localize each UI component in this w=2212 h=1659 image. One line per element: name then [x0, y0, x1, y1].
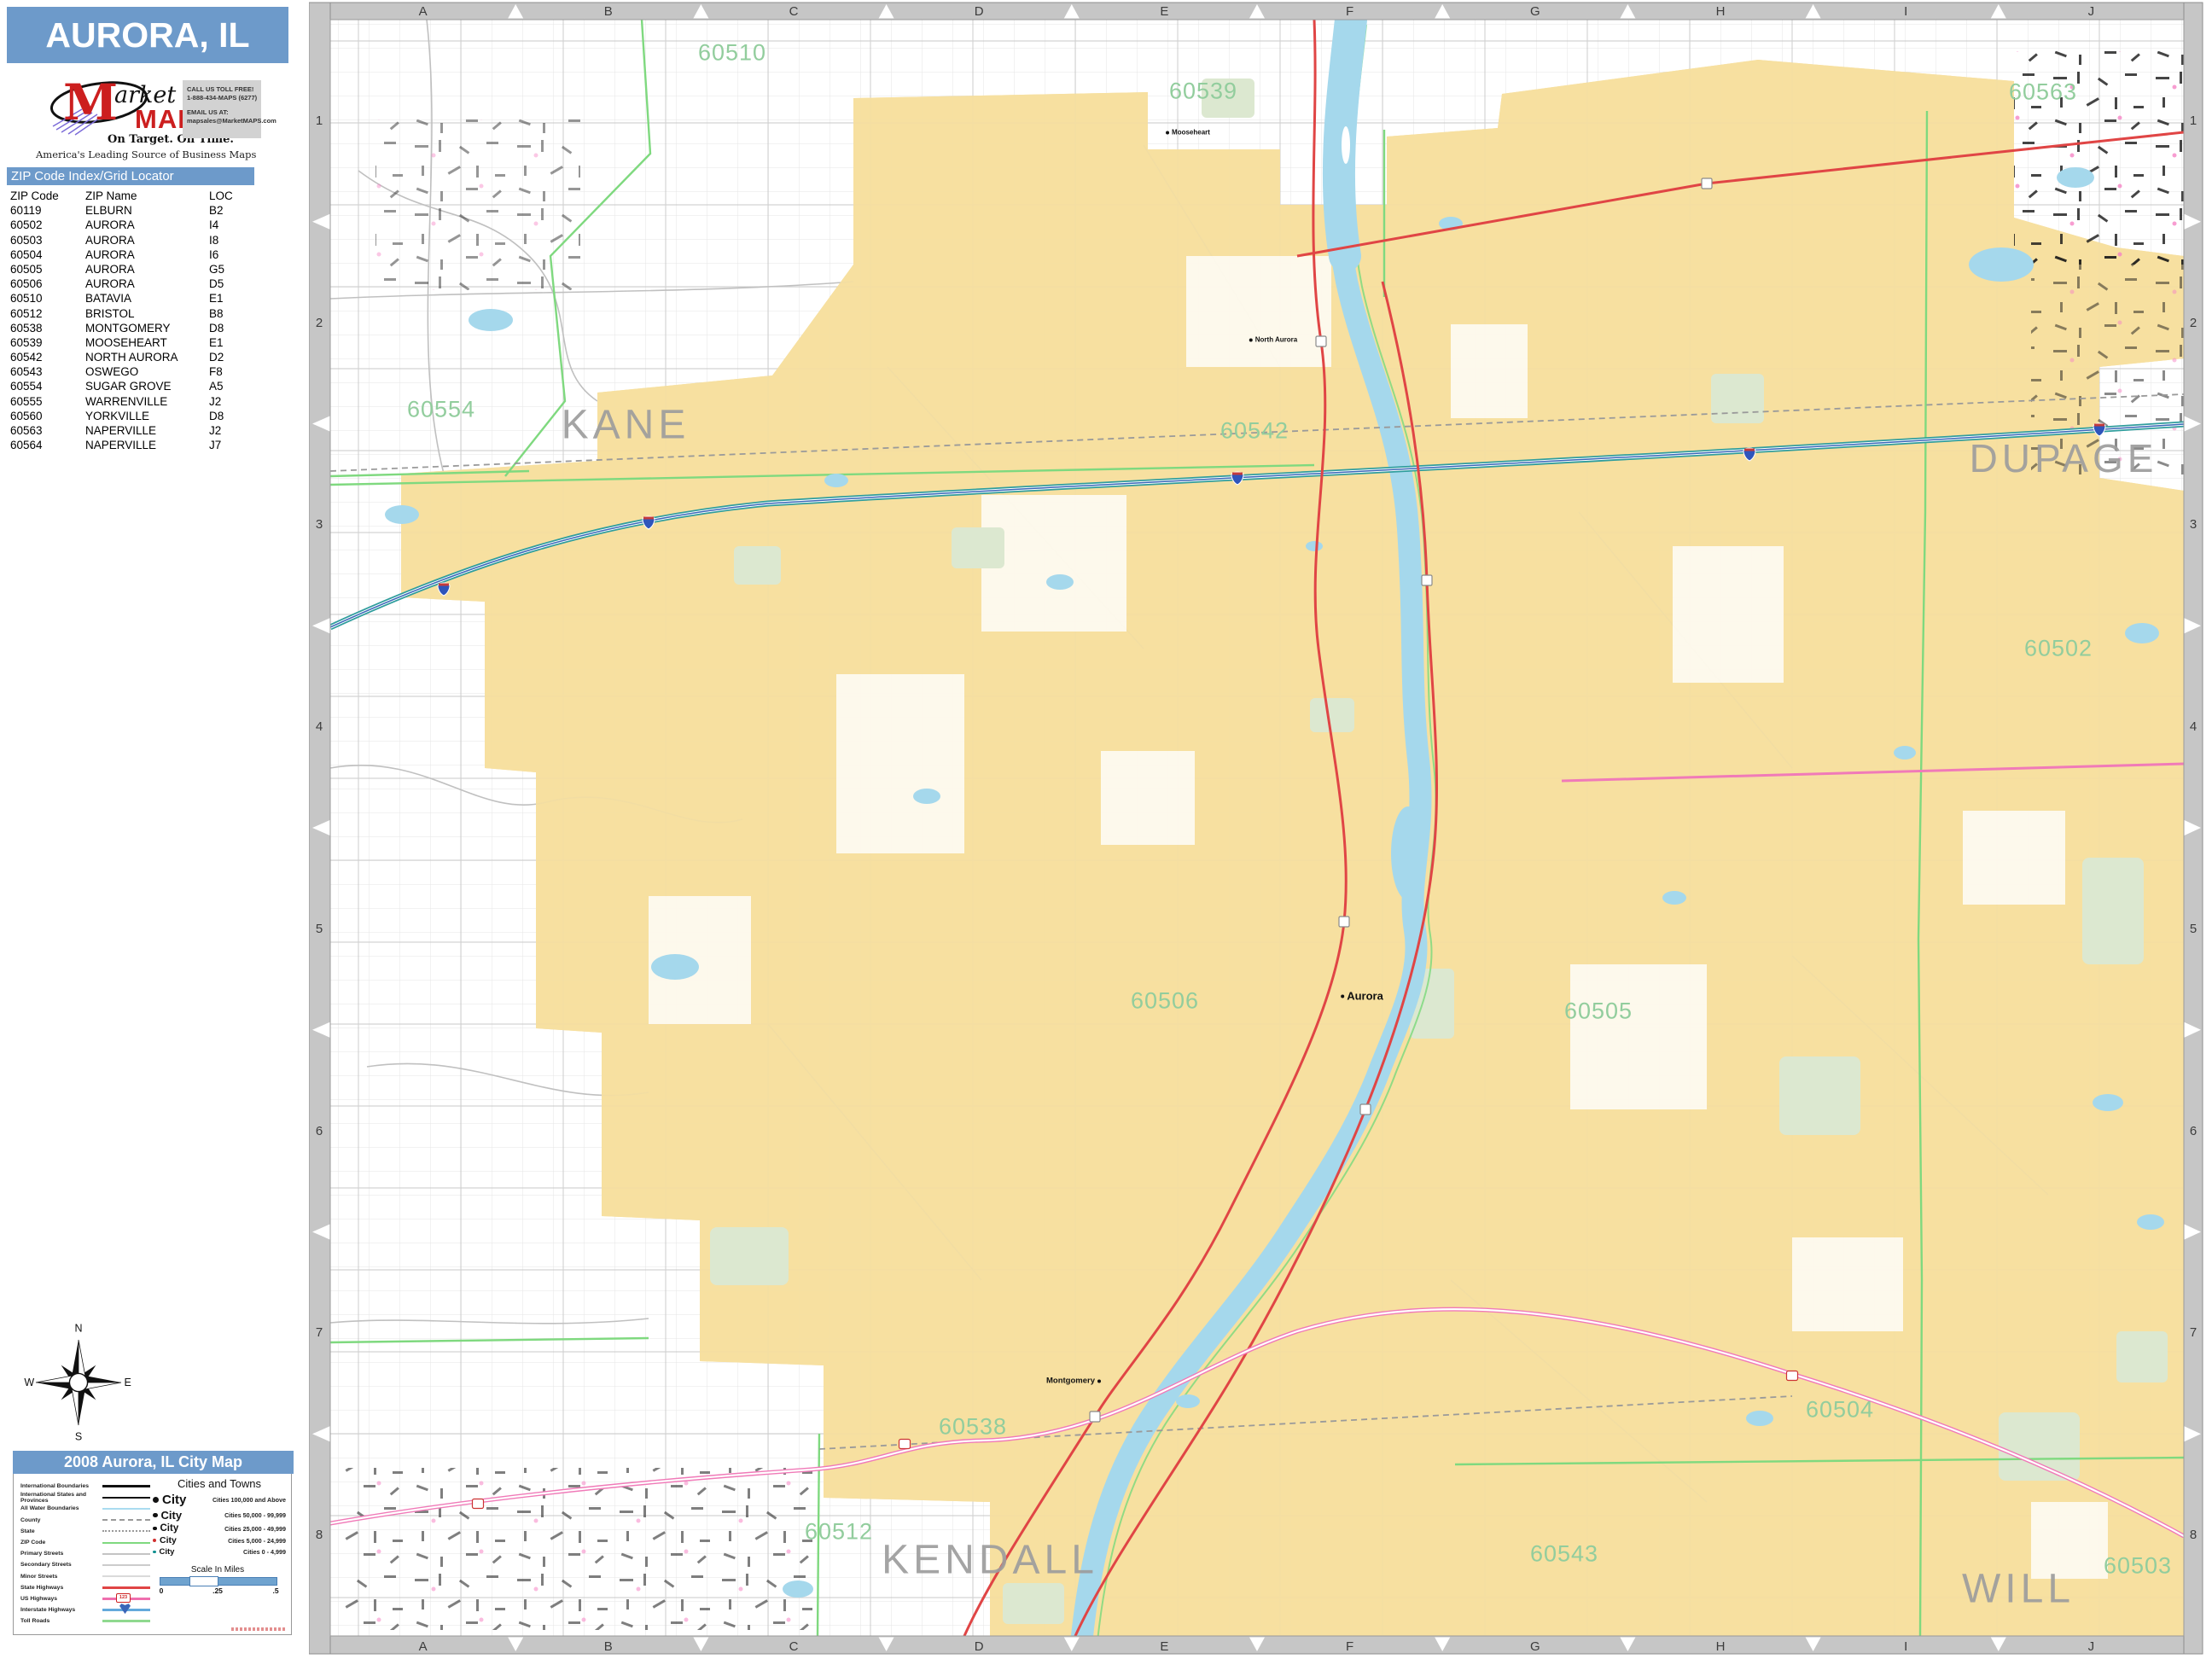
zip-cell: 60512 — [10, 306, 85, 321]
city-size-sample: City — [160, 1523, 179, 1534]
grid-label: 6 — [2185, 1030, 2202, 1232]
grid-label: J — [1999, 1639, 2184, 1654]
contact-box: CALL US TOLL FREE! 1-888-434-MAPS (6277)… — [183, 80, 261, 138]
grid-label: 4 — [2185, 626, 2202, 828]
zip-cell: D8 — [209, 321, 266, 335]
zip-cell: 60538 — [10, 321, 85, 335]
grid-label: 7 — [310, 1232, 329, 1435]
legend-item-label: County — [20, 1517, 102, 1523]
legend-item-label: State — [20, 1528, 102, 1534]
city-size-range: Cities 5,000 - 24,999 — [228, 1537, 286, 1545]
zip-cell: B8 — [209, 306, 266, 321]
legend-item: US Highways123 — [20, 1593, 150, 1604]
grid-label: 5 — [2185, 828, 2202, 1030]
legend-item: Secondary Streets — [20, 1559, 150, 1570]
zip-cell: AURORA — [85, 218, 209, 232]
map-canvas — [0, 0, 2212, 1659]
zip-cell: 60564 — [10, 438, 85, 452]
legend-item-swatch — [102, 1530, 150, 1532]
grid-label: 6 — [310, 1030, 329, 1232]
legend-line-icon — [102, 1586, 150, 1589]
contact-line: 1-888-434-MAPS (6277) — [187, 94, 258, 102]
zip-index-table: ZIP Code ZIP Name LOC 60119ELBURNB260502… — [10, 189, 266, 452]
zip-cell: WARRENVILLE — [85, 394, 209, 409]
legend-title: 2008 Aurora, IL City Map — [13, 1451, 294, 1474]
grid-label: C — [701, 1639, 886, 1654]
zip-cell: MOOSEHEART — [85, 335, 209, 350]
zip-cell: 60505 — [10, 262, 85, 276]
city-size-dot-icon — [153, 1527, 157, 1531]
zip-cell: J2 — [209, 423, 266, 438]
city-size-dot-icon — [153, 1497, 159, 1503]
zip-cell: OSWEGO — [85, 364, 209, 379]
zip-cell: 60543 — [10, 364, 85, 379]
legend-line-icon — [102, 1575, 150, 1577]
legend-item: ZIP Code — [20, 1537, 150, 1548]
grid-label: 5 — [310, 828, 329, 1030]
zip-row: 60560YORKVILLED8 — [10, 409, 266, 423]
compass-east: E — [125, 1377, 131, 1388]
contact-line: mapsales@MarketMAPS.com — [187, 117, 258, 125]
zip-cell: F8 — [209, 364, 266, 379]
grid-label: 3 — [2185, 424, 2202, 626]
zip-cell: AURORA — [85, 247, 209, 262]
grid-label: B — [515, 1639, 701, 1654]
legend-item-swatch — [102, 1508, 150, 1510]
legend-item: Interstate Highways — [20, 1604, 150, 1615]
legend-item: All Water Boundaries — [20, 1503, 150, 1514]
grid-label: 3 — [310, 424, 329, 626]
scale-tick-quarter: .25 — [212, 1586, 223, 1595]
grid-label: 2 — [2185, 222, 2202, 424]
city-size-sample: City — [161, 1509, 183, 1522]
scale-bar — [160, 1577, 277, 1586]
legend-item-label: US Highways — [20, 1596, 102, 1602]
zip-cell: 60510 — [10, 291, 85, 306]
zip-table-body: 60119ELBURNB260502AURORAI460503AURORAI86… — [10, 203, 266, 452]
legend-box: 2008 Aurora, IL City Map International B… — [13, 1451, 292, 1635]
grid-label: D — [887, 1639, 1072, 1654]
zip-cell: D5 — [209, 276, 266, 291]
grid-label: B — [515, 3, 701, 19]
legend-line-icon — [102, 1497, 150, 1499]
legend-item-swatch — [102, 1553, 150, 1555]
legend-item: County — [20, 1515, 150, 1526]
grid-label: G — [1442, 3, 1627, 19]
zip-cell: BATAVIA — [85, 291, 209, 306]
city-size-entry: CityCities 5,000 - 24,999 — [153, 1535, 286, 1545]
legend-line-icon — [102, 1620, 150, 1622]
col-zip-name: ZIP Name — [85, 189, 209, 203]
grid-left: 12345678 — [310, 20, 329, 1636]
grid-label: C — [701, 3, 886, 19]
grid-label: 4 — [310, 626, 329, 828]
grid-right: 12345678 — [2185, 20, 2202, 1636]
legend-line-icon — [102, 1485, 150, 1487]
compass-rose: N S E W — [20, 1318, 137, 1447]
legend-item-swatch — [102, 1542, 150, 1544]
zip-cell: 60542 — [10, 350, 85, 364]
legend-item-swatch — [102, 1575, 150, 1577]
legend-line-icon — [102, 1564, 150, 1566]
grid-label: I — [1813, 1639, 1999, 1654]
legend-item: Toll Roads — [20, 1615, 150, 1627]
city-size-range: Cities 50,000 - 99,999 — [224, 1511, 286, 1519]
zip-cell: BRISTOL — [85, 306, 209, 321]
zip-cell: AURORA — [85, 262, 209, 276]
legend-item: International Boundaries — [20, 1481, 150, 1492]
zip-cell: AURORA — [85, 276, 209, 291]
zip-cell: E1 — [209, 335, 266, 350]
legend-line-icon — [102, 1553, 150, 1555]
scale-tick-0: 0 — [160, 1586, 164, 1595]
grid-label: F — [1257, 3, 1442, 19]
legend-item-label: Interstate Highways — [20, 1607, 102, 1613]
city-size-range: Cities 0 - 4,999 — [243, 1548, 286, 1556]
legend-item-label: International Boundaries — [20, 1483, 102, 1489]
compass-south: S — [75, 1430, 82, 1442]
scale-ticks: 0 .25 .5 — [160, 1586, 276, 1596]
legend-item: Minor Streets — [20, 1571, 150, 1582]
city-size-range: Cities 100,000 and Above — [212, 1496, 286, 1504]
scale-block: Scale In Miles 0 .25 .5 — [153, 1565, 286, 1596]
zip-row: 60538MONTGOMERYD8 — [10, 321, 266, 335]
legend-item-swatch — [102, 1485, 150, 1487]
zip-cell: I4 — [209, 218, 266, 232]
zip-row: 60554SUGAR GROVEA5 — [10, 379, 266, 393]
zip-row: 60503AURORAI8 — [10, 233, 266, 247]
grid-label: E — [1072, 1639, 1257, 1654]
zip-index-header: ZIP Code Index/Grid Locator — [7, 167, 254, 185]
zip-cell: G5 — [209, 262, 266, 276]
zip-cell: I6 — [209, 247, 266, 262]
legend-item: State — [20, 1526, 150, 1537]
grid-label: A — [330, 1639, 515, 1654]
grid-label: 1 — [310, 20, 329, 222]
legend-item-swatch — [102, 1497, 150, 1499]
grid-label: I — [1813, 3, 1999, 19]
zip-row: 60542NORTH AURORAD2 — [10, 350, 266, 364]
zip-cell: 60554 — [10, 379, 85, 393]
zip-row: 60543OSWEGOF8 — [10, 364, 266, 379]
logo-m: M — [63, 73, 118, 131]
grid-bottom: ABCDEFGHIJ — [330, 1639, 2184, 1654]
city-size-sample: City — [160, 1535, 177, 1545]
zip-cell: 60539 — [10, 335, 85, 350]
grid-label: H — [1627, 3, 1813, 19]
zip-cell: NAPERVILLE — [85, 438, 209, 452]
page: KANEDUPAGEKENDALLWILL6051060539605636055… — [0, 0, 2212, 1659]
zip-cell: YORKVILLE — [85, 409, 209, 423]
grid-label: 8 — [310, 1434, 329, 1636]
grid-label: 8 — [2185, 1434, 2202, 1636]
city-size-entry: CityCities 0 - 4,999 — [153, 1547, 286, 1557]
zip-cell: D2 — [209, 350, 266, 364]
city-size-entry: CityCities 25,000 - 49,999 — [153, 1523, 286, 1534]
legend-item-swatch — [102, 1609, 150, 1611]
zip-row: 60502AURORAI4 — [10, 218, 266, 232]
legend-item-label: Minor Streets — [20, 1574, 102, 1580]
legend-line-icon — [102, 1508, 150, 1510]
zip-row: 60512BRISTOLB8 — [10, 306, 266, 321]
zip-cell: SUGAR GROVE — [85, 379, 209, 393]
zip-cell: J2 — [209, 394, 266, 409]
legend-line-icon — [102, 1519, 150, 1521]
legend-item: State Highways — [20, 1582, 150, 1593]
zip-row: 60119ELBURNB2 — [10, 203, 266, 218]
grid-label: A — [330, 3, 515, 19]
grid-top: ABCDEFGHIJ — [330, 3, 2184, 19]
zip-cell: AURORA — [85, 233, 209, 247]
scale-title: Scale In Miles — [160, 1565, 276, 1575]
grid-label: 7 — [2185, 1232, 2202, 1435]
legend-line-icon — [102, 1542, 150, 1544]
zip-cell: 60563 — [10, 423, 85, 438]
zip-cell: 60555 — [10, 394, 85, 409]
grid-label: J — [1999, 3, 2184, 19]
legend-item-swatch — [102, 1586, 150, 1589]
zip-cell: ELBURN — [85, 203, 209, 218]
contact-line: EMAIL US AT: — [187, 108, 258, 116]
zip-cell: NORTH AURORA — [85, 350, 209, 364]
grid-label: F — [1257, 1639, 1442, 1654]
grid-label: G — [1442, 1639, 1627, 1654]
zip-cell: 60502 — [10, 218, 85, 232]
city-size-dot-icon — [153, 1539, 156, 1542]
cities-and-towns: Cities and Towns CityCities 100,000 and … — [153, 1477, 286, 1596]
zip-cell: NAPERVILLE — [85, 423, 209, 438]
zip-cell: 60503 — [10, 233, 85, 247]
legend-line-icon — [102, 1530, 150, 1532]
city-size-dot-icon — [153, 1551, 156, 1554]
zip-row: 60504AURORAI6 — [10, 247, 266, 262]
zip-cell: I8 — [209, 233, 266, 247]
cities-entries: CityCities 100,000 and AboveCityCities 5… — [153, 1493, 286, 1557]
zip-row: 60505AURORAG5 — [10, 262, 266, 276]
marketmaps-logo: M arket MAPS On Target. On Time. America… — [7, 72, 288, 167]
contact-line: CALL US TOLL FREE! — [187, 85, 258, 93]
zip-cell: 60504 — [10, 247, 85, 262]
zip-cell: D8 — [209, 409, 266, 423]
legend-item-swatch — [102, 1564, 150, 1566]
grid-label: 2 — [310, 222, 329, 424]
col-zip-code: ZIP Code — [10, 189, 85, 203]
scale-tick-half: .5 — [272, 1586, 278, 1595]
zip-cell: 60506 — [10, 276, 85, 291]
grid-label: E — [1072, 3, 1257, 19]
legend-item-swatch — [102, 1620, 150, 1622]
zip-cell: B2 — [209, 203, 266, 218]
grid-label: H — [1627, 1639, 1813, 1654]
city-size-dot-icon — [153, 1513, 158, 1518]
zip-cell: 60119 — [10, 203, 85, 218]
zip-row: 60564NAPERVILLEJ7 — [10, 438, 266, 452]
legend-items: International BoundariesInternational St… — [20, 1481, 150, 1627]
legend-item-label: International States and Provinces — [20, 1492, 102, 1504]
legend-item-label: Secondary Streets — [20, 1562, 102, 1568]
legend-item-label: State Highways — [20, 1585, 102, 1591]
city-size-entry: CityCities 50,000 - 99,999 — [153, 1509, 286, 1522]
legend-item-swatch — [102, 1519, 150, 1521]
us-shield-icon: 123 — [116, 1593, 131, 1603]
zip-row: 60539MOOSEHEARTE1 — [10, 335, 266, 350]
zip-cell: MONTGOMERY — [85, 321, 209, 335]
legend-item-label: Primary Streets — [20, 1551, 102, 1557]
city-size-sample: City — [162, 1493, 186, 1507]
left-panel: AURORA, IL M arket MAPS On Target. On Ti… — [0, 0, 309, 1659]
cities-title: Cities and Towns — [153, 1477, 286, 1490]
city-size-sample: City — [160, 1547, 175, 1557]
zip-cell: 60560 — [10, 409, 85, 423]
legend-fine-print — [231, 1627, 286, 1631]
city-size-range: Cities 25,000 - 49,999 — [224, 1525, 286, 1533]
zip-row: 60510BATAVIAE1 — [10, 291, 266, 306]
legend-item: International States and Provinces — [20, 1492, 150, 1503]
zip-table-header: ZIP Code ZIP Name LOC — [10, 189, 266, 203]
legend-item-swatch: 123 — [102, 1598, 150, 1600]
legend-item-label: Toll Roads — [20, 1618, 102, 1624]
city-size-entry: CityCities 100,000 and Above — [153, 1493, 286, 1507]
zip-row: 60506AURORAD5 — [10, 276, 266, 291]
zip-cell: E1 — [209, 291, 266, 306]
logo-subtitle: America's Leading Source of Business Map… — [36, 148, 256, 160]
compass-north: N — [74, 1322, 82, 1334]
legend-item-label: ZIP Code — [20, 1540, 102, 1545]
zip-row: 60555WARRENVILLEJ2 — [10, 394, 266, 409]
page-title: AURORA, IL — [7, 7, 288, 63]
grid-label: 1 — [2185, 20, 2202, 222]
zip-cell: J7 — [209, 438, 266, 452]
zip-row: 60563NAPERVILLEJ2 — [10, 423, 266, 438]
legend-item: Primary Streets — [20, 1548, 150, 1559]
grid-label: D — [887, 3, 1072, 19]
col-loc: LOC — [209, 189, 266, 203]
zip-cell: A5 — [209, 379, 266, 393]
compass-west: W — [24, 1377, 34, 1388]
legend-item-label: All Water Boundaries — [20, 1505, 102, 1511]
